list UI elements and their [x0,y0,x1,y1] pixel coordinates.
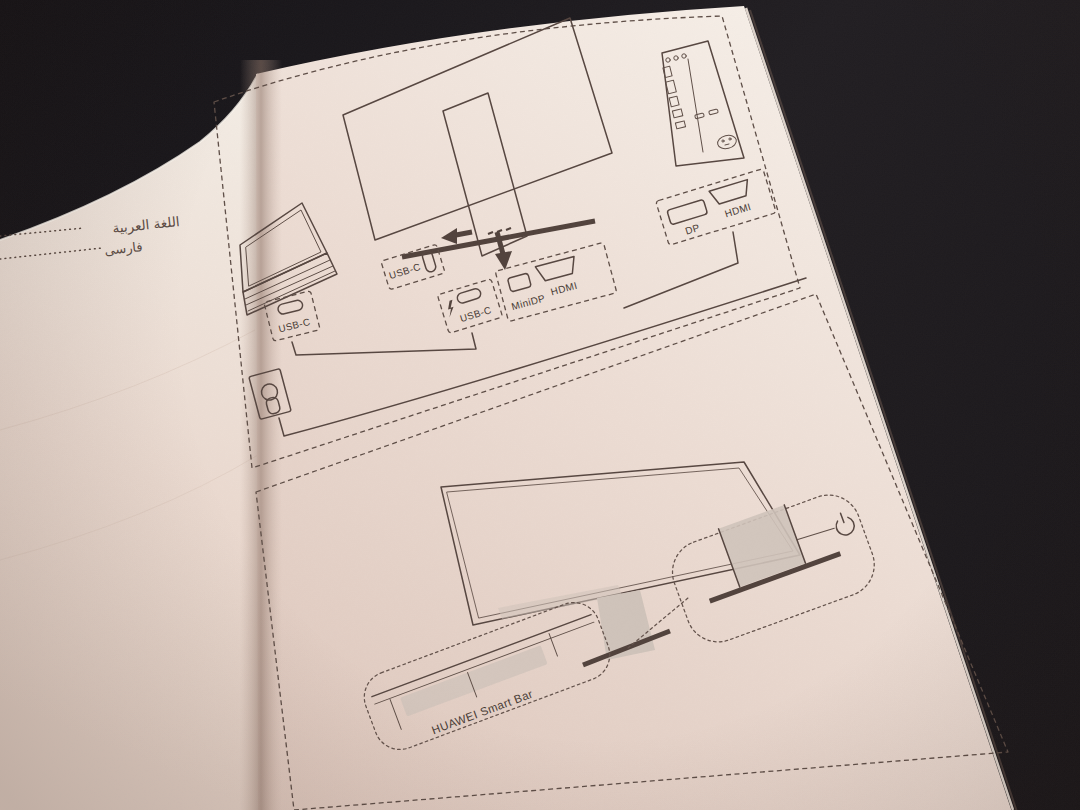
photo-grain [0,0,1080,810]
photo-of-open-manual: اللغة العربية فارسی USB-C [0,0,1080,810]
